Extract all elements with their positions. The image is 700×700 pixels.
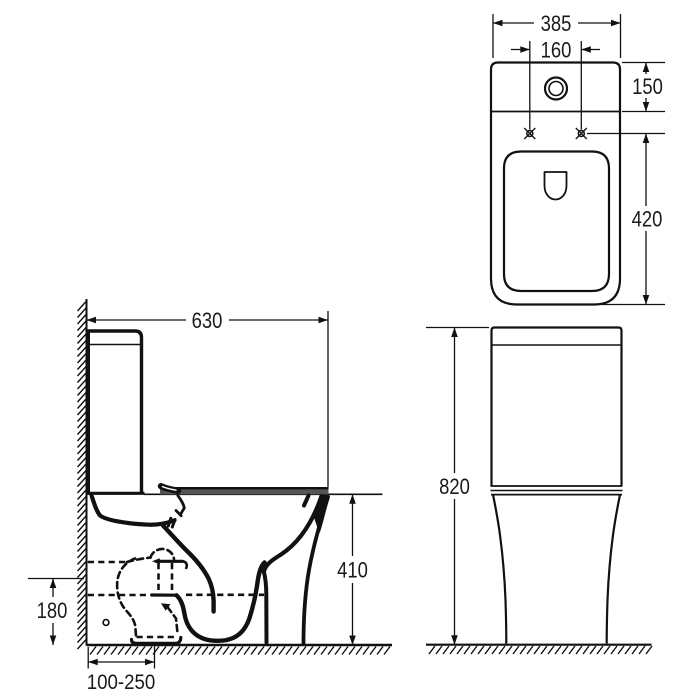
svg-text:180: 180	[37, 598, 68, 623]
svg-text:385: 385	[541, 11, 572, 36]
svg-text:100-250: 100-250	[87, 671, 156, 694]
svg-text:820: 820	[439, 474, 470, 499]
svg-text:160: 160	[541, 38, 572, 63]
svg-text:410: 410	[337, 558, 368, 583]
svg-text:630: 630	[192, 308, 223, 333]
svg-text:420: 420	[632, 207, 663, 232]
svg-text:150: 150	[632, 74, 663, 99]
